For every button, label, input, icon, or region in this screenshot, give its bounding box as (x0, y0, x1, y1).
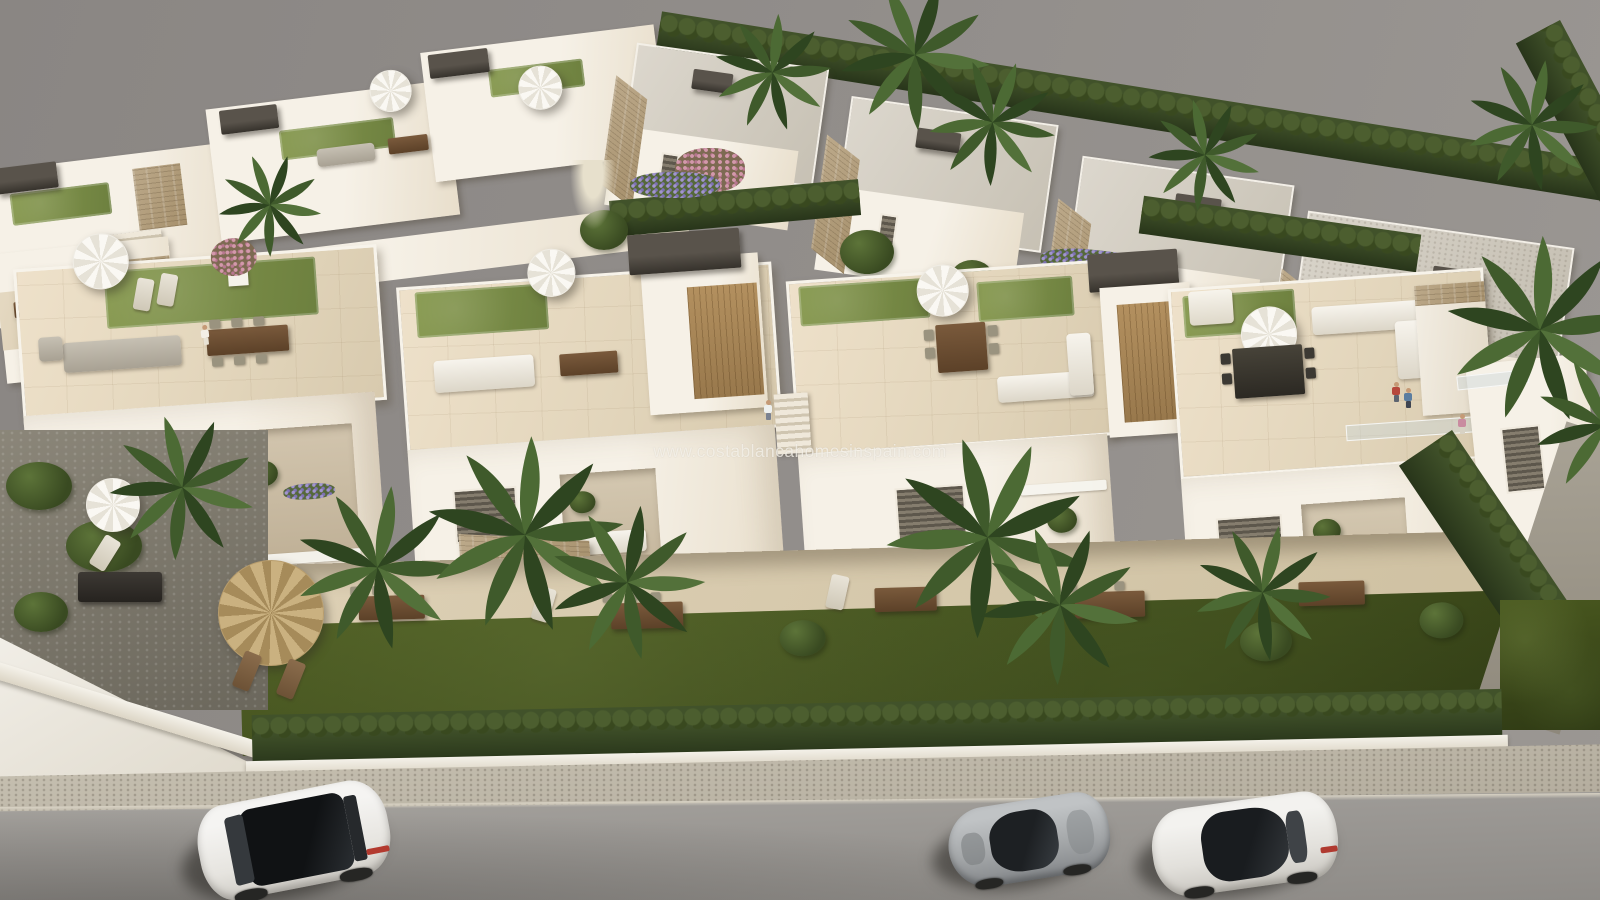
chair (231, 318, 243, 328)
rooftop-corner-sofa (1066, 332, 1094, 396)
chair (1220, 353, 1231, 365)
chair (925, 347, 936, 359)
lavender-bed (630, 172, 720, 198)
chair (209, 319, 221, 329)
chair (987, 325, 998, 337)
chair (923, 329, 934, 341)
rooftop-dining-table (935, 322, 988, 373)
chair (1305, 367, 1316, 379)
rooftop-dining-table-dark (1232, 344, 1305, 399)
back-stone-wall (132, 163, 187, 230)
chair (1304, 347, 1315, 359)
chair (253, 316, 265, 326)
rooftop-daybed (1188, 289, 1234, 326)
chair (212, 357, 224, 367)
rooftop-lawn-3b (976, 276, 1075, 323)
stair-pergola-a (627, 228, 742, 276)
garden-bush (14, 592, 68, 632)
chair (989, 343, 1000, 355)
palm-tree (959, 504, 1161, 706)
garden-bush (6, 462, 72, 510)
watermark-text: www.costablancahomesinspain.com (653, 441, 947, 462)
bbq-counter (78, 572, 162, 602)
right-garden-grass (1500, 600, 1600, 730)
chair (256, 354, 268, 364)
chair (234, 356, 246, 366)
rooftop-armchair (38, 336, 64, 362)
architectural-render-scene: www.costablancahomesinspain.com (0, 0, 1600, 900)
pampas-grass (570, 160, 616, 230)
palm-tree (95, 400, 270, 575)
palm-tree (1139, 89, 1271, 221)
chair (1222, 373, 1233, 385)
stair-tower-wood-panel (687, 283, 765, 400)
rooftop-coffee-table (559, 350, 618, 376)
rooftop-lawn-2 (414, 283, 549, 338)
